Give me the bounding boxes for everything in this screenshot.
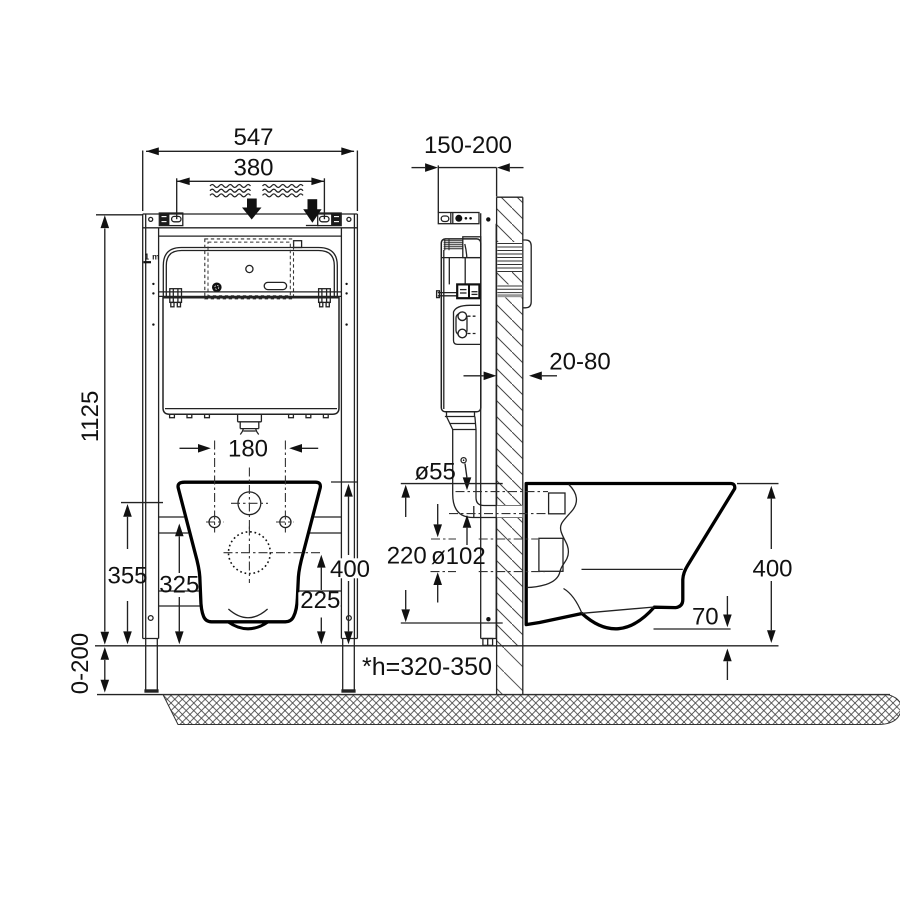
svg-text:*h=320-350: *h=320-350 <box>362 653 492 681</box>
svg-text:1125: 1125 <box>77 391 104 443</box>
svg-text:225: 225 <box>300 587 340 614</box>
svg-text:355: 355 <box>107 563 147 590</box>
svg-text:547: 547 <box>233 124 273 151</box>
svg-text:ø102: ø102 <box>431 543 486 570</box>
svg-text:ø55: ø55 <box>415 459 456 486</box>
svg-text:220: 220 <box>387 543 427 570</box>
svg-text:325: 325 <box>159 572 199 599</box>
svg-text:400: 400 <box>330 556 370 583</box>
svg-text:150-200: 150-200 <box>424 132 512 159</box>
svg-text:1 m: 1 m <box>145 253 160 262</box>
svg-text:180: 180 <box>228 436 268 463</box>
svg-text:400: 400 <box>752 556 792 583</box>
svg-text:0-200: 0-200 <box>67 633 94 694</box>
svg-text:380: 380 <box>233 155 273 182</box>
svg-text:20-80: 20-80 <box>549 349 610 376</box>
svg-text:70: 70 <box>692 604 719 631</box>
